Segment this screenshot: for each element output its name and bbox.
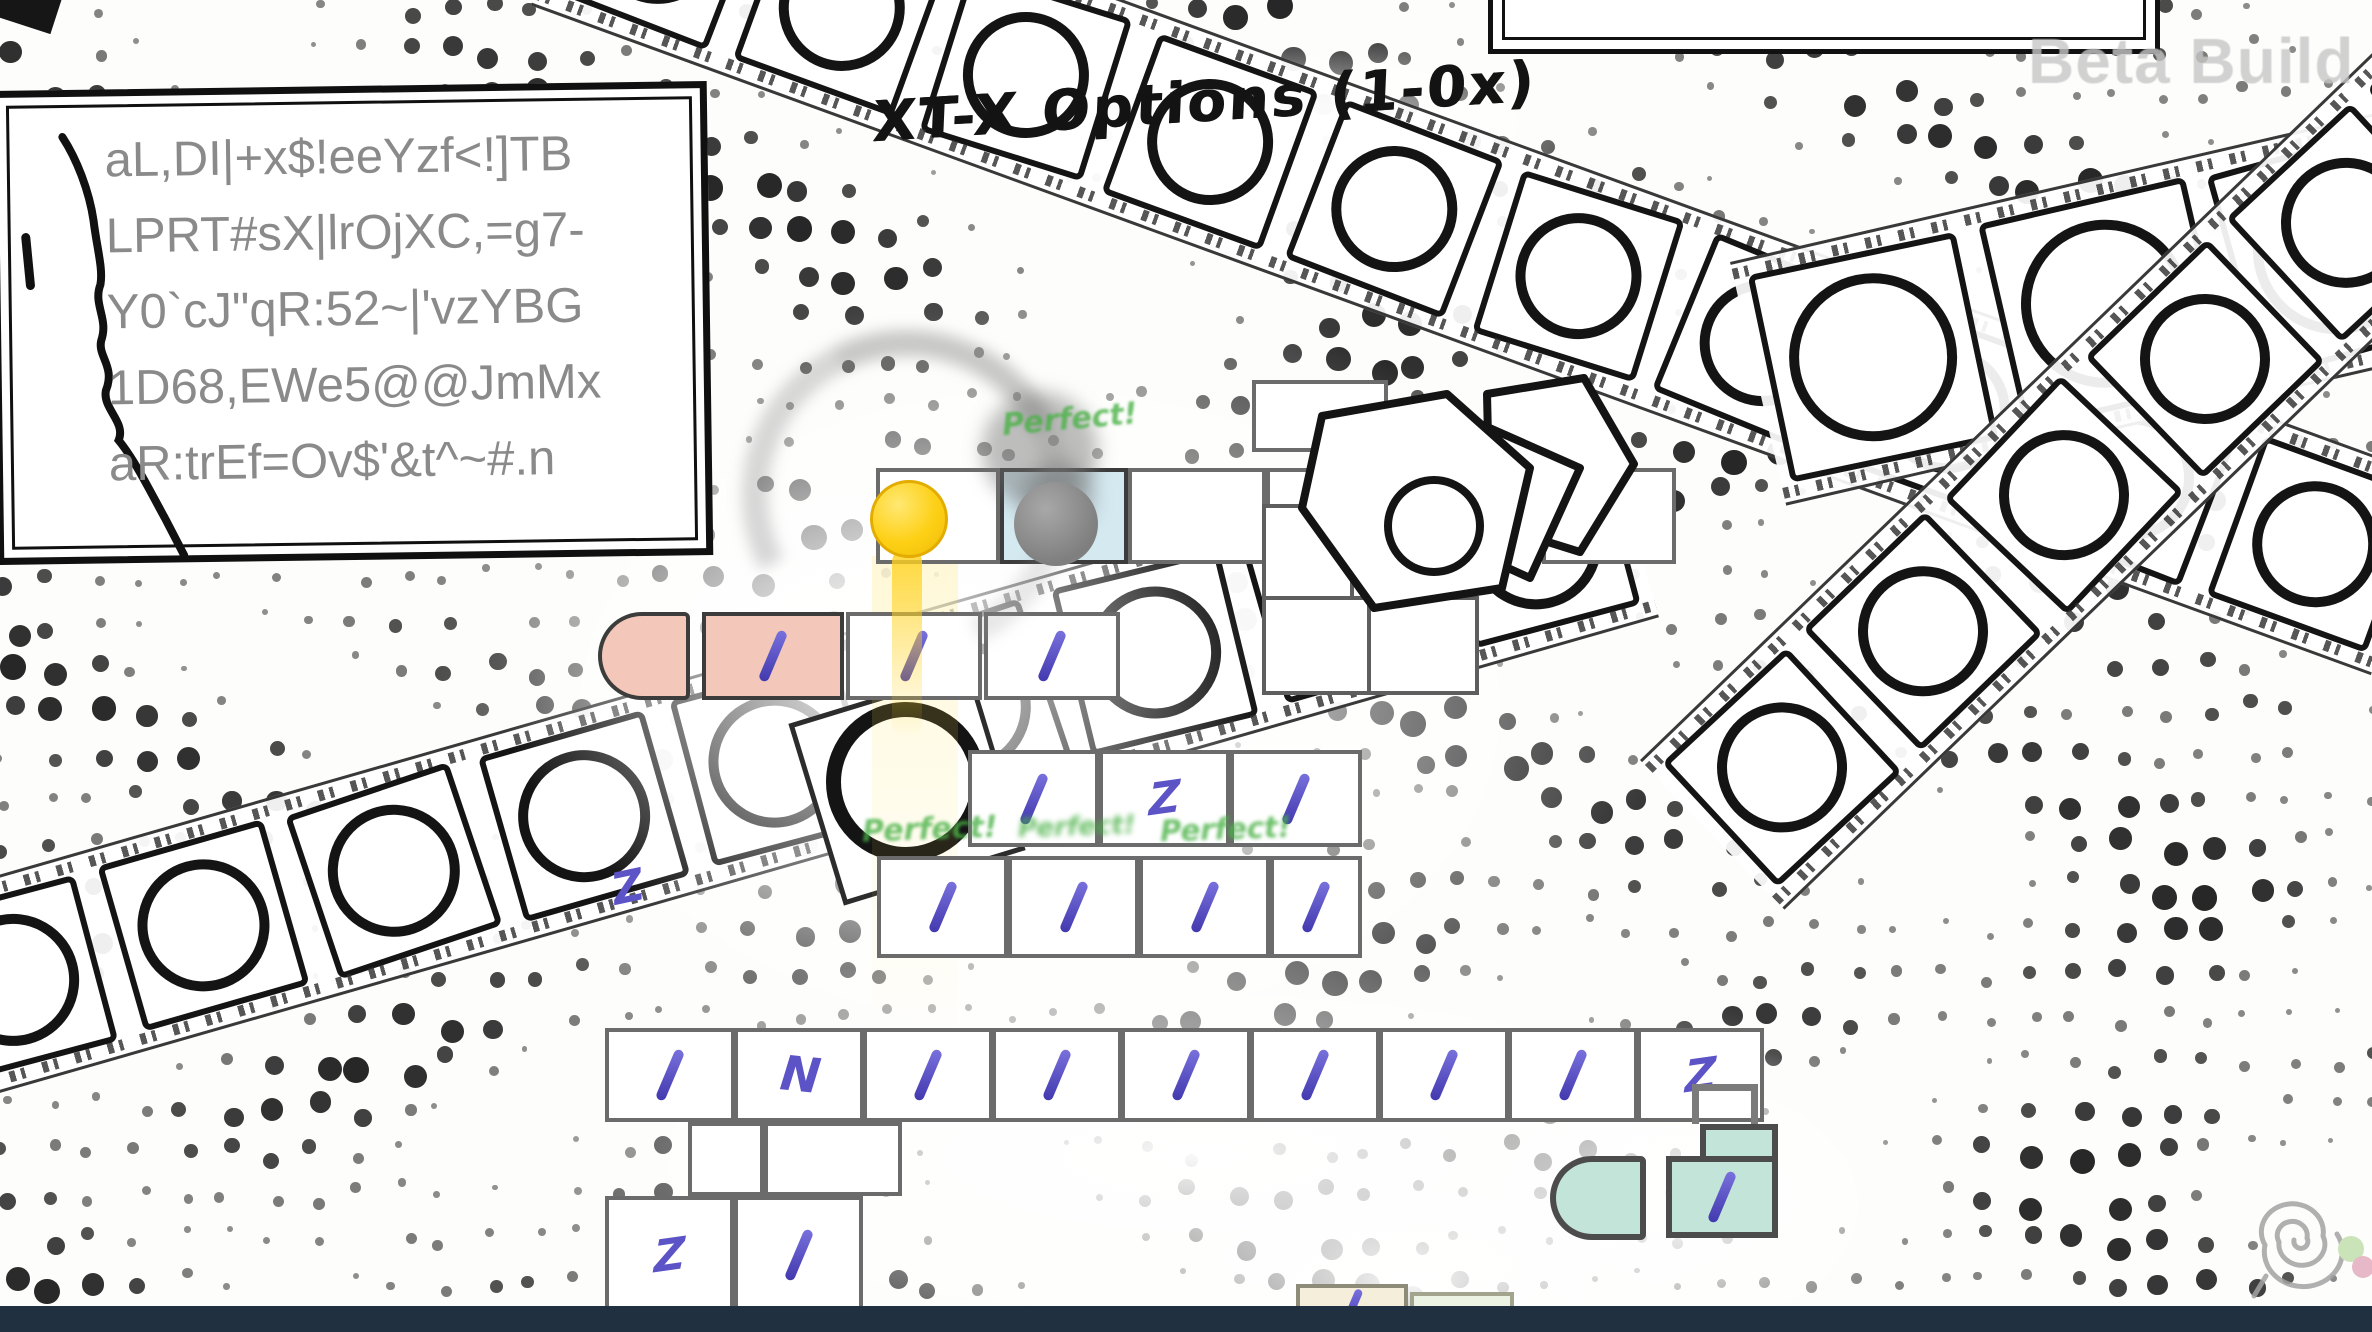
board-tile[interactable] [1508, 1028, 1638, 1122]
perfect-stamp: Perfect! [1018, 810, 1136, 844]
spiral-target-icon[interactable] [2230, 1178, 2354, 1308]
dialogue-bubble[interactable]: aL,DI|+x$!eeYzf<!]TBLPRT#sX|lrOjXC,=g7-Y… [0, 81, 713, 565]
ink-scribble-mark: N [734, 1026, 864, 1124]
board-tile[interactable] [1128, 468, 1266, 564]
board-tile[interactable] [1666, 1156, 1778, 1238]
player-trail [892, 548, 922, 738]
ink-slash-mark [1274, 860, 1358, 954]
bubble-line: 1D68,EWe5@@JmMx [107, 342, 694, 426]
bottom-bar [0, 1306, 2372, 1332]
board-tile[interactable] [764, 1122, 902, 1196]
pen-stroke [655, 1048, 685, 1102]
perfect-stamp: Perfect! [1159, 810, 1291, 849]
pen-stroke [1189, 880, 1219, 934]
pen-stroke [1058, 880, 1088, 934]
ink-slash-mark [881, 860, 1004, 954]
board-tile[interactable]: Z [605, 1196, 734, 1314]
game-screen: ZNZZ Perfect! aL,DI|+x$!eeYzf<!]TBLPRT#s… [0, 0, 2372, 1332]
pen-stroke [1171, 1048, 1201, 1102]
ink-slash-mark [1254, 1032, 1376, 1118]
perfect-stamp: Perfect! [861, 810, 998, 850]
beta-build-watermark: Beta Build [2028, 24, 2354, 98]
pipe-bracket [1692, 1084, 1758, 1124]
gray-ball[interactable] [1014, 482, 1098, 566]
board-tile[interactable] [734, 1196, 863, 1314]
ink-slash-mark [1143, 860, 1266, 954]
ink-z-mark: Z [610, 1191, 730, 1319]
pen-stroke [1429, 1048, 1459, 1102]
board-tile[interactable] [877, 856, 1008, 958]
pen-stroke [927, 880, 957, 934]
board-tile[interactable] [1250, 1028, 1380, 1122]
ink-slash-mark [1512, 1032, 1634, 1118]
circle-shape [1388, 480, 1480, 572]
pen-stroke [913, 1048, 943, 1102]
board-tile[interactable] [688, 1122, 764, 1196]
ink-slash-mark [996, 1032, 1118, 1118]
board-tile[interactable]: N [734, 1028, 864, 1122]
ink-slash-mark [1383, 1032, 1505, 1118]
ink-slash-mark [1012, 860, 1135, 954]
pen-stroke [1301, 880, 1331, 934]
board-tile[interactable] [1008, 856, 1139, 958]
board-tile[interactable] [1270, 856, 1362, 958]
pen-stroke [758, 629, 788, 683]
pen-stroke [1037, 629, 1067, 683]
board-tile[interactable] [863, 1028, 993, 1122]
ink-slash-mark [988, 616, 1116, 696]
ink-slash-mark [609, 1032, 731, 1118]
shape-cluster [1262, 356, 1654, 718]
bubble-line: aR:trEf=Ov$'&t^~#.n [108, 418, 695, 502]
board-tile[interactable] [1550, 1156, 1646, 1240]
board-tile[interactable] [992, 1028, 1122, 1122]
board-tile[interactable] [1379, 1028, 1509, 1122]
board-tile[interactable] [1121, 1028, 1251, 1122]
bubble-line: aL,DI|+x$!eeYzf<!]TB [104, 114, 691, 198]
pen-stroke [1558, 1048, 1588, 1102]
bubble-line: LPRT#sX|lrOjXC,=g7- [105, 190, 692, 274]
board-tile[interactable] [1139, 856, 1270, 958]
bubble-line: Y0`cJ"qR:52~|'vzYBG [106, 266, 693, 350]
bubble-text: aL,DI|+x$!eeYzf<!]TBLPRT#sX|lrOjXC,=g7-Y… [104, 114, 695, 502]
board-tile[interactable] [598, 612, 690, 700]
board-tile[interactable] [605, 1028, 735, 1122]
ink-slash-mark [867, 1032, 989, 1118]
player-yellow-ball[interactable] [870, 480, 948, 558]
ink-slash-mark [1672, 1162, 1772, 1232]
pen-stroke [1300, 1048, 1330, 1102]
sprout-bud [2352, 1256, 2372, 1278]
ink-slash-mark [1125, 1032, 1247, 1118]
pen-stroke [1042, 1048, 1072, 1102]
pen-stroke [1707, 1170, 1737, 1224]
ink-slash-mark [738, 1200, 859, 1310]
pen-stroke [783, 1228, 813, 1282]
